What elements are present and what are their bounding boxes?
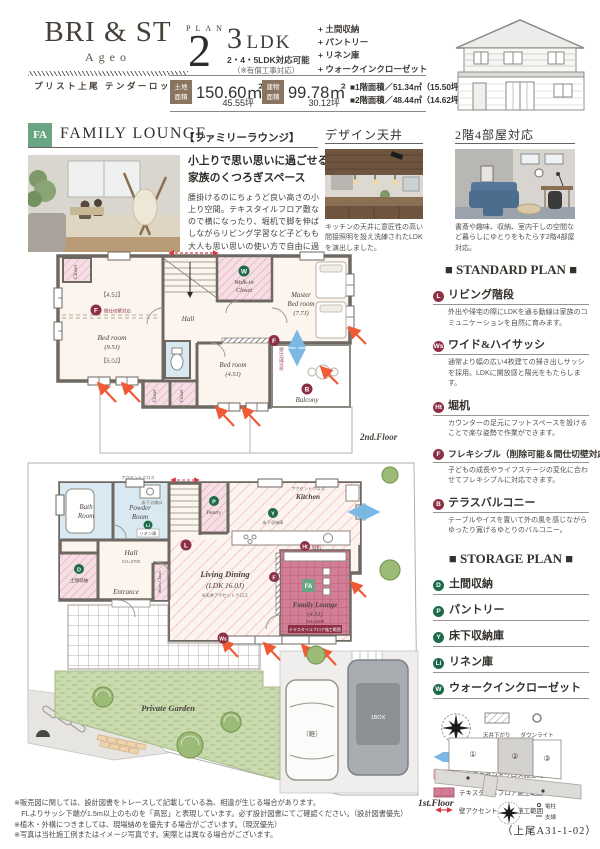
lot-2-number: ② [511, 752, 518, 761]
standard-plan-item-terrace-balcony: Bテラスバルコニー テーブルやイスを置いて外の風を感じながらゆったり寛げるゆとり… [433, 494, 589, 537]
tree [307, 646, 325, 664]
brand-caption: プリスト上尾 テンダーロッジ [26, 80, 190, 92]
standard-item-desc: 外出や帰宅の際にLDKを通る動線は家族のコミュニケーションを自然に育みます。 [448, 308, 589, 329]
label-master-size: (7.7J) [293, 310, 308, 317]
family-lounge-underline [28, 147, 318, 148]
label-entrance: Entrance [112, 588, 139, 596]
first-floor-plan: （軽） 1BOX L Ws Ht 堀机 F FA D P Y Li Bath R… [18, 455, 423, 800]
label-living-note: ※天井アクセントクロス [202, 592, 248, 599]
tree [93, 687, 113, 707]
standard-plan-item-desk: Ht堀机 カウンターの足元にフットスペースを設けることで楽な姿勢で作業ができます… [433, 397, 589, 440]
plan-code: （上尾A31-1-02） [502, 823, 597, 838]
label-bedroom1-size: (9.5J) [104, 344, 119, 351]
label-family-lounge-ch: CH=2100 [306, 619, 324, 624]
storage-item-name: パントリー [449, 601, 505, 617]
ldk-number: 3 [227, 22, 242, 55]
storage-item-doma: D土間収納 [433, 575, 589, 595]
header-rule-top [170, 75, 426, 76]
flyer-page: BRI & ST Ageo プリスト上尾 テンダーロッジ PLAN 2 3 LD… [0, 0, 600, 849]
family-lounge-title-jp: 【ファミリーラウンジ】 [184, 130, 300, 145]
family-lounge-heading-line1: 小上りで思い思いに過ごせる [188, 153, 328, 170]
standard-plan-item-living-stairs: Lリビング階段 外出や帰宅の際にLDKを通る動線は家族のコミュニケーションを自然… [433, 286, 589, 329]
standard-item-name: ワイド&ハイサッシ [448, 336, 545, 352]
footnote-line: ※植木・外構につきましては、現場納めを優先する場合がございます。（現況優先） [14, 820, 426, 831]
building-area-badge: 建物 面積 [262, 80, 284, 104]
storage-item-name: 床下収納庫 [449, 627, 504, 643]
label-hall-ch: CH=2700 [122, 559, 141, 564]
partition-note-1: 間仕切壁対応 [104, 308, 131, 315]
legend-wire-label: 支線 [545, 813, 557, 821]
car-kei-label: （軽） [302, 729, 322, 738]
label-hall-1f: Hall [123, 548, 137, 557]
second-floor-label: 2nd.Floor [359, 432, 398, 442]
plus-feature-pantry: + パントリー [318, 36, 427, 49]
badge-flexible: F [433, 449, 444, 460]
partition-note-2: 間仕切壁対応 [279, 347, 285, 371]
label-powder-line2: Room [131, 513, 148, 521]
standard-item-name: フレキシブル（削除可能＆間仕切壁対応） [448, 447, 600, 460]
label-hall-2f: Hall [181, 315, 195, 323]
label-inspection-hatch: 床下点検口 [142, 499, 163, 506]
badge-desk-plan: Ht [302, 545, 308, 551]
standard-plan-item-wide-sash: Wsワイド&ハイサッシ 通常より幅の広い4枚建ての掃き出しサッシを採用。LDKに… [433, 336, 589, 390]
family-lounge-photo [28, 155, 180, 252]
ldk-type: 3 LDK [227, 22, 292, 56]
label-size-a: 【4.5J】 [100, 292, 123, 299]
downlight-icon [530, 712, 544, 724]
standard-item-desc: テーブルやイスを置いて外の風を感じながらゆったり寛げるゆとりのバルコニー。 [448, 516, 589, 537]
storage-item-underfloor: Y床下収納庫 [433, 627, 589, 647]
land-area-badge: 土地 面積 [170, 80, 192, 104]
four-rooms-caption: 書斎や趣味、収納、室内干しの空間など暮らしにゆとりをもたらす2階4部屋対応。 [455, 223, 577, 254]
plus-feature-doma: + 土間収納 [318, 23, 427, 36]
label-closet-nw: Closet [73, 265, 79, 280]
label-balcony: Balcony [296, 396, 320, 404]
badge-wide-sash: Ws [433, 341, 444, 352]
car-1box: 1BOX [348, 660, 408, 775]
label-textile-range: テキスタイルフロア施工範囲 [289, 626, 341, 632]
label-bath-line1: Bath [79, 503, 93, 511]
standard-item-desc: 子どもの成長やライフステージの変化に合わせてフレキシブルに対応できます。 [448, 466, 589, 487]
badge-underfloor-plan: Y [271, 512, 275, 518]
storage-item-linen: Liリネン庫 [433, 653, 589, 673]
site-location-map: ① ② ③ 電柱 支線 [433, 733, 585, 833]
label-wic-line1: Walk-in [234, 279, 253, 286]
plan-number: 2 [188, 28, 211, 74]
design-ceiling-photo [325, 149, 423, 219]
label-living-line1: Living Dining [199, 569, 250, 579]
tree [380, 560, 400, 580]
land-area-badge-line2: 面積 [170, 93, 192, 103]
label-family-lounge-line1: Family Lounge [293, 601, 338, 609]
ldk-unit: LDK [246, 32, 291, 53]
standard-plan-title: ■ STANDARD PLAN ■ [433, 262, 589, 278]
badge-family-lounge-plan: FA [305, 584, 313, 590]
badge-wide-sash-plan: Ws [219, 637, 227, 643]
badge-wic: W [241, 269, 248, 276]
brand-title: BRI & ST [26, 16, 190, 49]
badge-pantry-plan: P [212, 500, 216, 506]
building-area-badge-line2: 面積 [262, 93, 284, 103]
label-private-garden: Private Garden [141, 703, 195, 713]
storage-item-wic: Wウォークインクローゼット [433, 679, 589, 699]
label-bedroom1: Bed room [97, 333, 127, 342]
label-family-lounge-size: (4.5J) [307, 611, 322, 618]
footnote-line: ※販売図に関しては、設計図書をトレースして記載している為、相違が生じる場合があり… [14, 798, 426, 809]
standard-item-name: リビング階段 [448, 286, 514, 302]
badge-doma: D [433, 580, 444, 591]
badge-underfloor: Y [433, 632, 444, 643]
storage-item-name: リネン庫 [449, 653, 493, 669]
badge-living-stairs-plan: L [184, 543, 188, 550]
badge-flexible-2: F [272, 338, 276, 345]
footnote-line: ※写真は当社施工例またはイメージ写真です。実際とは異なる場合がございます。 [14, 830, 426, 841]
car-1box-label: 1BOX [371, 715, 386, 721]
badge-desk: Ht [433, 402, 444, 413]
badge-flexible-1: F [94, 308, 98, 315]
label-kitchen: Kitchen [295, 492, 320, 501]
four-rooms-title: 2階4部屋対応 [455, 126, 534, 143]
standard-plan-item-flexible: Fフレキシブル（削除可能＆間仕切壁対応） 子どもの成長やライフステージの変化に合… [433, 447, 589, 487]
lot-3-number: ③ [543, 754, 550, 763]
brand-hatch-divider [28, 71, 188, 76]
label-master-line1: Master [290, 291, 311, 299]
standard-item-name: テラスバルコニー [448, 494, 536, 510]
storage-item-pantry: Pパントリー [433, 601, 589, 621]
building-area-tsubo: 30.12坪 [288, 96, 340, 109]
four-rooms-photo [455, 149, 575, 219]
building-area-badge-line1: 建物 [262, 83, 284, 93]
lot-1-number: ① [469, 750, 476, 759]
family-lounge-heading-line2: 家族のくつろぎスペース [188, 170, 328, 187]
family-lounge-heading: 小上りで思い思いに過ごせる 家族のくつろぎスペース [188, 153, 328, 188]
plus-feature-list: + 土間収納 + パントリー + リネン庫 + ウォークインクローゼット [318, 23, 427, 76]
badge-balcony: B [305, 387, 310, 394]
desk-label: 堀机 [312, 544, 321, 551]
label-living-line2: (LDK 16.0J) [206, 581, 244, 590]
badge-linen: Li [433, 658, 444, 669]
design-ceiling-title: デザイン天井 [325, 126, 403, 143]
badge-pantry: P [433, 606, 444, 617]
header-rule-bottom [170, 111, 426, 112]
badge-terrace-balcony: B [433, 499, 444, 510]
land-area-badge-line1: 土地 [170, 83, 192, 93]
label-doma: 土間収納 [70, 577, 88, 584]
tree [221, 712, 241, 732]
label-shoes-closet: Shoes Closet [157, 570, 162, 593]
label-bedroom2-size: (4.5J) [225, 371, 240, 378]
badge-living-stairs: L [433, 291, 444, 302]
second-floor-plan: F 間仕切壁対応 W F 間仕切壁対応 B Closet 【4.5J】 Bed … [20, 250, 412, 465]
storage-item-name: 土間収納 [449, 575, 493, 591]
storage-item-name: ウォークインクローゼット [449, 679, 581, 695]
sidebar: ■ STANDARD PLAN ■ Lリビング階段 外出や帰宅の際にLDKを通る… [433, 262, 589, 815]
design-ceiling-underline [325, 143, 423, 144]
label-powder-line1: Powder [128, 504, 151, 512]
ceiling-drop-swatch [484, 712, 510, 724]
footnote-line: FLよりサッシ下端が1.5m以上のものを「高窓」と表現しています。必ず設計図書に… [14, 809, 426, 820]
label-closet-s2: Closet [180, 389, 185, 402]
label-pantry: Pantry [206, 510, 223, 516]
badge-wic-list: W [433, 684, 444, 695]
plus-feature-linen: + リネン庫 [318, 49, 427, 62]
standard-item-desc: カウンターの足元にフットスペースを設けることで楽な姿勢で作業ができます。 [448, 419, 589, 440]
label-wic-line2: Closet [236, 287, 252, 294]
family-lounge-badge: FA [28, 123, 52, 147]
tree [177, 732, 203, 758]
label-bath-line2: Room [77, 512, 94, 520]
label-linen: リネン庫 [140, 530, 157, 537]
label-bedroom2: Bed room [219, 361, 246, 369]
storage-plan-title: ■ STORAGE PLAN ■ [433, 551, 589, 567]
tree [382, 467, 398, 483]
legend-pole-label: 電柱 [545, 802, 557, 810]
badge-linen-plan: Li [146, 523, 150, 528]
four-rooms-underline [455, 143, 575, 144]
badge-doma-plan: D [77, 568, 81, 574]
footnotes: ※販売図に関しては、設計図書をトレースして記載している為、相違が生じる場合があり… [14, 798, 426, 841]
standard-item-desc: 通常より幅の広い4枚建ての掃き出しサッシを採用。LDKに開放感と陽光をもたらしま… [448, 358, 589, 390]
label-underfloor-storage: 床下収納庫 [263, 519, 284, 526]
land-area-tsubo: 45.55坪 [196, 96, 254, 109]
plus-feature-wic: + ウォークインクローゼット [318, 63, 427, 76]
brand-subtitle: Ageo [26, 50, 190, 65]
house-exterior-illustration [448, 12, 593, 112]
label-master-line2: Bed room [287, 300, 314, 308]
standard-item-name: 堀机 [448, 397, 470, 413]
brand-block: BRI & ST Ageo プリスト上尾 テンダーロッジ [26, 16, 190, 92]
label-size-b: 【5.0J】 [100, 358, 123, 365]
label-closet-s1: Closet [153, 389, 158, 402]
car-kei: （軽） [286, 680, 338, 780]
